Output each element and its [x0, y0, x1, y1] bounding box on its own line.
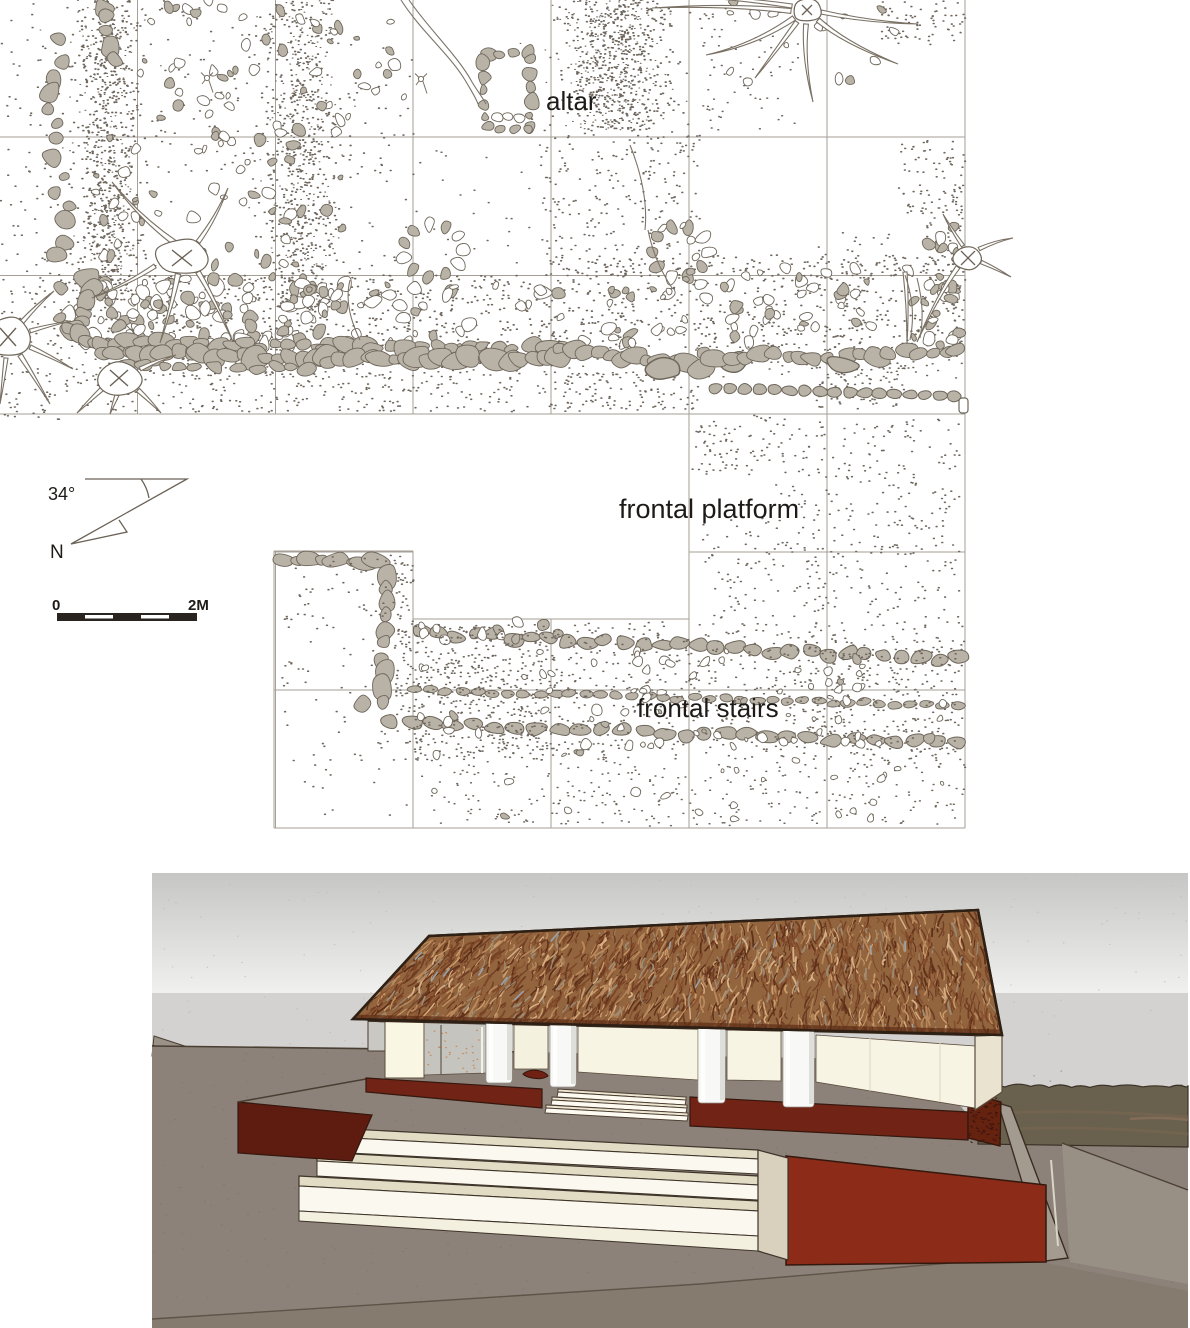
svg-text:frontal stairs: frontal stairs — [637, 693, 779, 723]
svg-text:N: N — [50, 542, 64, 563]
svg-text:frontal platform: frontal platform — [619, 494, 799, 524]
svg-text:34°: 34° — [48, 484, 75, 504]
svg-text:2M: 2M — [188, 597, 209, 614]
svg-text:0: 0 — [52, 597, 60, 614]
svg-text:altar: altar — [546, 86, 597, 116]
